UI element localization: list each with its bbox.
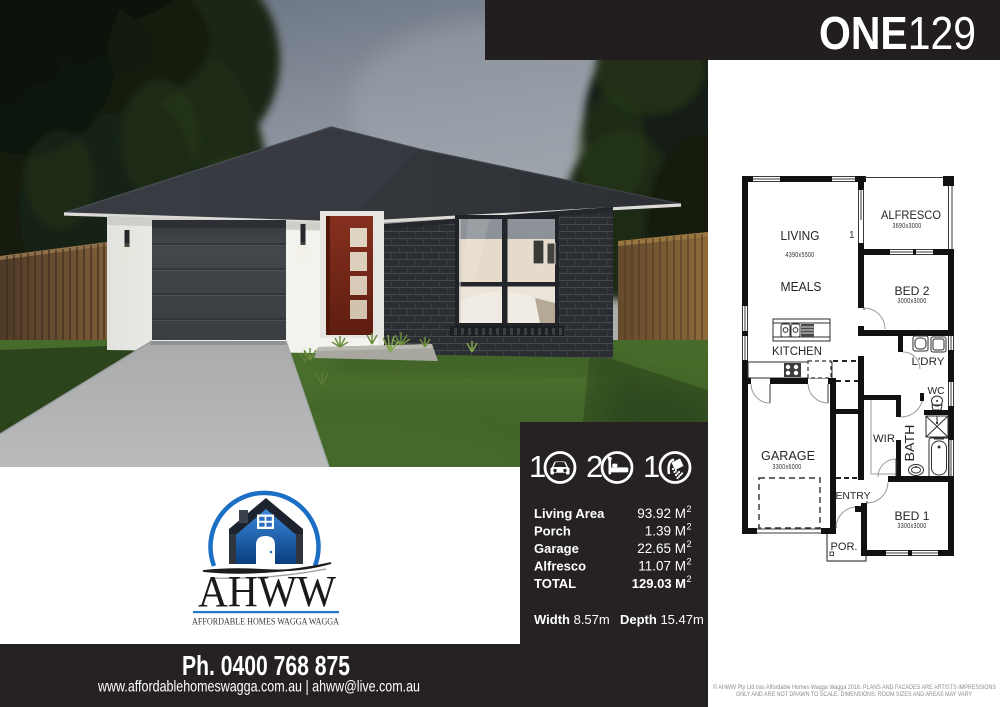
svg-text:Depth 15.47m: Depth 15.47m [620, 612, 704, 627]
svg-text:Ph. 0400 768 875: Ph. 0400 768 875 [182, 650, 350, 681]
svg-text:2: 2 [687, 539, 692, 549]
svg-text:LIVING: LIVING [781, 229, 820, 243]
svg-text:2: 2 [687, 557, 692, 567]
svg-text:© AHWW Pty Ltd t/as Affordable: © AHWW Pty Ltd t/as Affordable Homes Wag… [713, 683, 997, 691]
svg-text:3300x6000: 3300x6000 [773, 464, 802, 471]
svg-text:ONLY AND ARE NOT DRAWN TO SCAL: ONLY AND ARE NOT DRAWN TO SCALE. DIMENSI… [736, 691, 973, 698]
svg-text:2: 2 [687, 522, 692, 532]
svg-text:AHWW: AHWW [198, 567, 336, 616]
svg-text:BED 1: BED 1 [895, 509, 930, 523]
svg-text:WIR: WIR [873, 433, 895, 445]
svg-text:Porch: Porch [534, 524, 571, 539]
svg-text:Alfresco: Alfresco [534, 559, 586, 574]
svg-text:BATH: BATH [903, 425, 917, 462]
svg-text:2: 2 [687, 574, 692, 584]
svg-text:MEALS: MEALS [781, 280, 822, 294]
svg-text:POR.: POR. [831, 541, 858, 553]
svg-text:AFFORDABLE HOMES WAGGA WAGGA: AFFORDABLE HOMES WAGGA WAGGA [192, 617, 339, 627]
svg-text:129.03 M: 129.03 M [632, 576, 686, 591]
svg-text:ONE129: ONE129 [819, 7, 976, 59]
svg-text:KITCHEN: KITCHEN [772, 346, 822, 358]
svg-text:1: 1 [643, 449, 660, 484]
svg-text:TOTAL: TOTAL [534, 576, 576, 591]
svg-text:3690x3000: 3690x3000 [893, 223, 922, 230]
svg-text:1.39 M: 1.39 M [645, 524, 686, 539]
svg-text:WC: WC [928, 385, 945, 397]
svg-text:1: 1 [849, 230, 855, 241]
svg-text:www.affordablehomeswagga.com.a: www.affordablehomeswagga.com.au | ahww@l… [97, 679, 420, 696]
svg-text:L'DRY: L'DRY [912, 356, 946, 368]
svg-text:4390x5500: 4390x5500 [786, 252, 815, 259]
svg-text:Living Area: Living Area [534, 506, 605, 521]
svg-text:Garage: Garage [534, 541, 579, 556]
svg-text:ALFRESCO: ALFRESCO [881, 210, 941, 222]
svg-text:BED 2: BED 2 [895, 284, 930, 298]
svg-text:11.07 M: 11.07 M [638, 559, 686, 574]
svg-text:2: 2 [687, 504, 692, 514]
svg-text:22.65 M: 22.65 M [637, 541, 686, 556]
svg-text:Width 8.57m: Width 8.57m [534, 612, 610, 627]
svg-text:93.92 M: 93.92 M [637, 506, 686, 521]
svg-text:GARAGE: GARAGE [761, 449, 815, 463]
svg-text:3000x3000: 3000x3000 [898, 298, 927, 305]
svg-text:3300x3000: 3300x3000 [898, 523, 927, 530]
svg-text:ENTRY: ENTRY [836, 490, 871, 502]
